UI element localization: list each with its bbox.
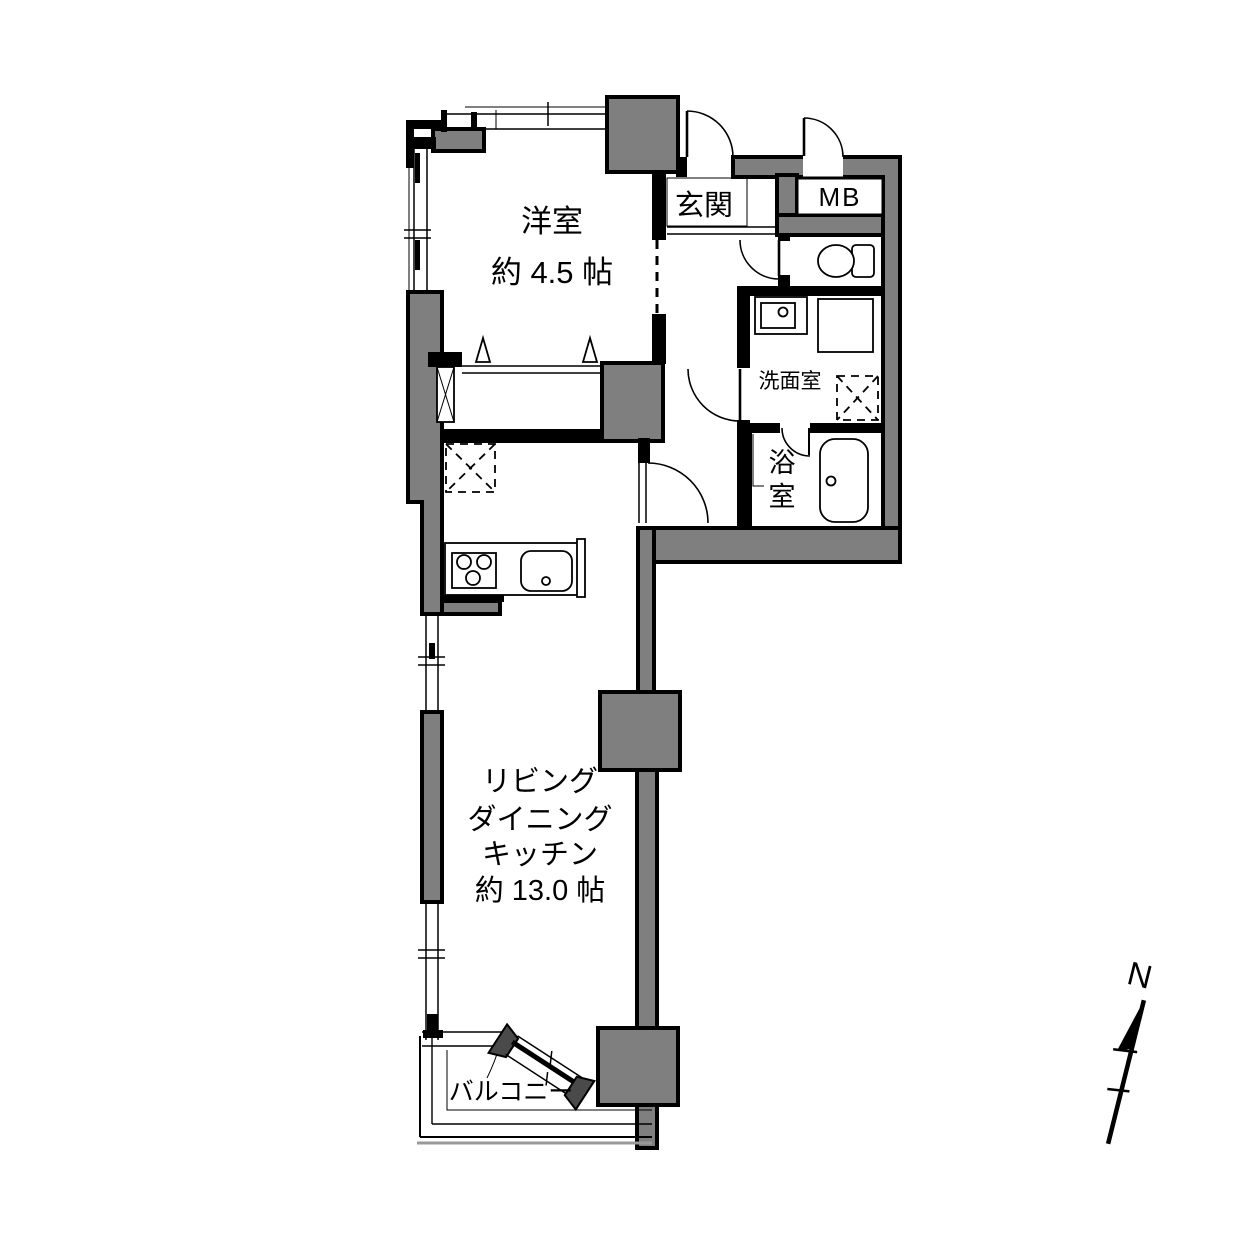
left-wall-upper bbox=[408, 292, 442, 614]
label-western-room-size: 約 4.5 帖 bbox=[491, 255, 613, 290]
ldk-right-wall-lower bbox=[637, 770, 657, 1030]
washroom-left-wall bbox=[737, 296, 750, 368]
entry-door-jamb bbox=[676, 157, 687, 177]
label-bathroom-2: 室 bbox=[769, 482, 796, 512]
north-label: N bbox=[1124, 954, 1156, 996]
closet-side-block bbox=[602, 363, 663, 441]
washroom-door-arc bbox=[688, 369, 740, 421]
kitchen-wall-stub bbox=[442, 601, 500, 614]
mb-bottom-wall bbox=[777, 215, 883, 235]
entry-door-arc bbox=[687, 111, 733, 157]
floor-plan-canvas: N 洋室 約 4.5 帖 玄関 MB 洗面室 浴 室 リビング ダイニング キッ… bbox=[0, 0, 1252, 1252]
washing-machine bbox=[818, 299, 873, 352]
washbasin bbox=[755, 297, 807, 334]
kitchen-stub-top bbox=[440, 595, 504, 602]
pipe-space bbox=[437, 367, 454, 422]
stove bbox=[452, 553, 496, 588]
corner-post-top-left bbox=[433, 129, 484, 151]
label-western-room: 洋室 bbox=[521, 204, 583, 239]
label-ldk-3: キッチン bbox=[482, 839, 598, 871]
bath-bottom-band bbox=[638, 528, 900, 562]
pillar-bottom bbox=[598, 1028, 678, 1105]
closet bbox=[462, 338, 602, 373]
compass-north: N bbox=[1087, 954, 1162, 1146]
washroom-top-wall bbox=[737, 286, 884, 296]
door-stub bbox=[638, 438, 650, 463]
toilet-fixture bbox=[818, 245, 874, 277]
bath-divider-right bbox=[810, 423, 884, 433]
label-balcony: バルコニー bbox=[449, 1078, 574, 1106]
floor-plan: N 洋室 約 4.5 帖 玄関 MB 洗面室 浴 室 リビング ダイニング キッ… bbox=[0, 0, 1252, 1252]
ldk-right-wall-upper bbox=[638, 528, 654, 695]
mb-door-arc bbox=[804, 118, 843, 157]
label-meter-box: MB bbox=[819, 182, 862, 212]
ldk-door-arc bbox=[648, 463, 708, 523]
label-ldk-4: 約 13.0 帖 bbox=[475, 874, 606, 907]
pillar-top bbox=[607, 97, 678, 172]
closet-bottom-wall bbox=[442, 429, 604, 443]
toilet-door-arc bbox=[740, 240, 779, 279]
bathtub bbox=[820, 439, 868, 522]
label-bathroom-1: 浴 bbox=[769, 448, 796, 478]
bath-left-wall bbox=[737, 433, 752, 528]
pillar-middle bbox=[600, 692, 680, 770]
closet-left-wall bbox=[428, 352, 462, 367]
kitchen-sink bbox=[521, 551, 572, 591]
bath-divider-left bbox=[737, 423, 780, 433]
label-ldk-1: リビング bbox=[482, 765, 598, 798]
label-entrance: 玄関 bbox=[675, 189, 733, 222]
refrigerator-space bbox=[446, 444, 495, 492]
left-wall-middle bbox=[422, 712, 442, 902]
kitchen-counter bbox=[445, 539, 585, 597]
label-washroom: 洗面室 bbox=[759, 370, 822, 393]
washer-pan bbox=[837, 376, 878, 420]
label-ldk-2: ダイニング bbox=[467, 803, 612, 836]
